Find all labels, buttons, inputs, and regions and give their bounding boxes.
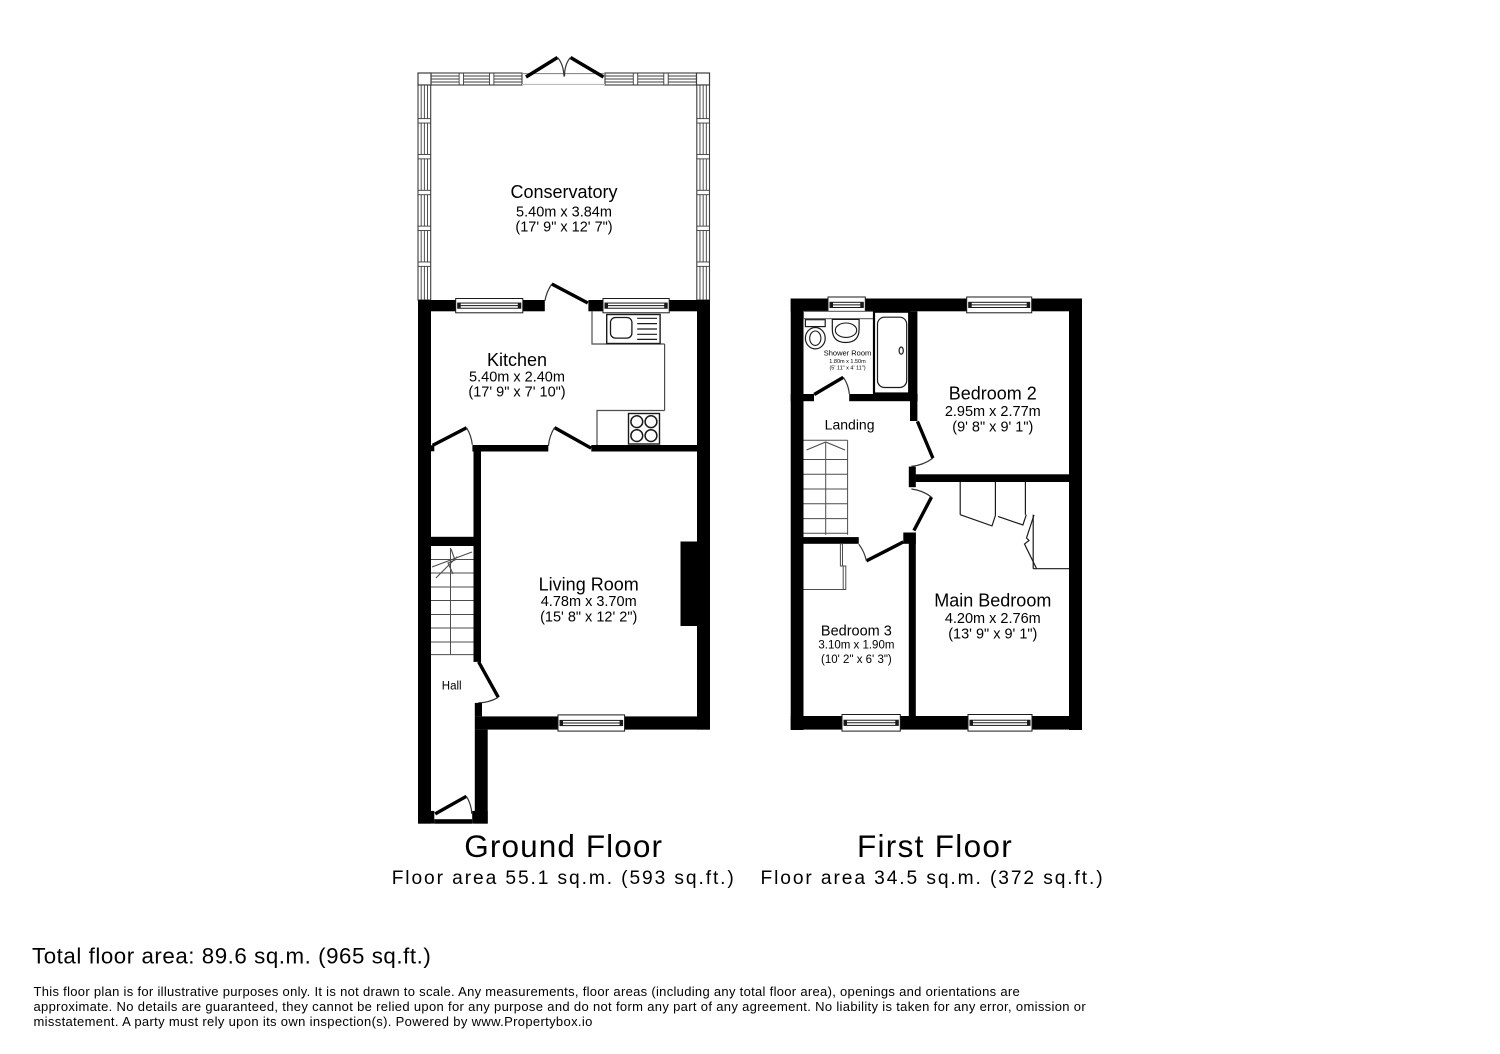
svg-text:Living Room: Living Room	[539, 574, 639, 594]
svg-text:misstatement. A party must rel: misstatement. A party must rely upon its…	[34, 1014, 593, 1029]
svg-text:(15' 8" x 12' 2"): (15' 8" x 12' 2")	[540, 610, 637, 626]
svg-text:5.40m x 2.40m: 5.40m x 2.40m	[469, 370, 565, 386]
svg-text:This floor plan is for illustr: This floor plan is for illustrative purp…	[34, 984, 1021, 999]
svg-text:(17' 9" x 7' 10"): (17' 9" x 7' 10")	[468, 385, 565, 401]
svg-text:Conservatory: Conservatory	[510, 182, 617, 202]
svg-text:(9' 8" x 9' 1"): (9' 8" x 9' 1")	[952, 420, 1033, 436]
svg-text:Main Bedroom: Main Bedroom	[934, 590, 1051, 610]
svg-text:Hall: Hall	[442, 681, 462, 693]
svg-text:Shower Room: Shower Room	[824, 349, 872, 358]
svg-text:Bedroom 2: Bedroom 2	[949, 384, 1037, 404]
svg-text:Total floor area: 89.6 sq.m. (: Total floor area: 89.6 sq.m. (965 sq.ft.…	[32, 944, 431, 969]
svg-text:4.78m x 3.70m: 4.78m x 3.70m	[541, 594, 637, 610]
svg-text:(5' 11" x 4' 11"): (5' 11" x 4' 11")	[829, 366, 865, 372]
svg-text:approximate. No details are gu: approximate. No details are guaranteed, …	[34, 999, 1087, 1014]
svg-text:Floor area 34.5 sq.m. (372 sq.: Floor area 34.5 sq.m. (372 sq.ft.)	[760, 868, 1104, 889]
svg-text:2.95m x 2.77m: 2.95m x 2.77m	[945, 404, 1041, 420]
svg-text:1.80m x 1.50m: 1.80m x 1.50m	[829, 359, 866, 365]
svg-text:(13' 9" x 9' 1"): (13' 9" x 9' 1")	[948, 626, 1037, 642]
svg-text:4.20m x 2.76m: 4.20m x 2.76m	[945, 611, 1041, 627]
svg-text:Landing: Landing	[825, 417, 875, 433]
svg-text:First Floor: First Floor	[857, 828, 1013, 864]
svg-text:Floor area 55.1 sq.m. (593 sq.: Floor area 55.1 sq.m. (593 sq.ft.)	[392, 868, 736, 889]
svg-text:(10' 2" x 6' 3"): (10' 2" x 6' 3")	[821, 654, 892, 666]
svg-text:3.10m x 1.90m: 3.10m x 1.90m	[818, 639, 894, 651]
svg-text:Ground Floor: Ground Floor	[464, 828, 663, 864]
svg-text:(17' 9" x 12' 7"): (17' 9" x 12' 7")	[515, 219, 612, 235]
svg-text:5.40m x 3.84m: 5.40m x 3.84m	[516, 204, 612, 220]
svg-text:Bedroom 3: Bedroom 3	[821, 624, 892, 640]
svg-text:Kitchen: Kitchen	[487, 350, 547, 370]
